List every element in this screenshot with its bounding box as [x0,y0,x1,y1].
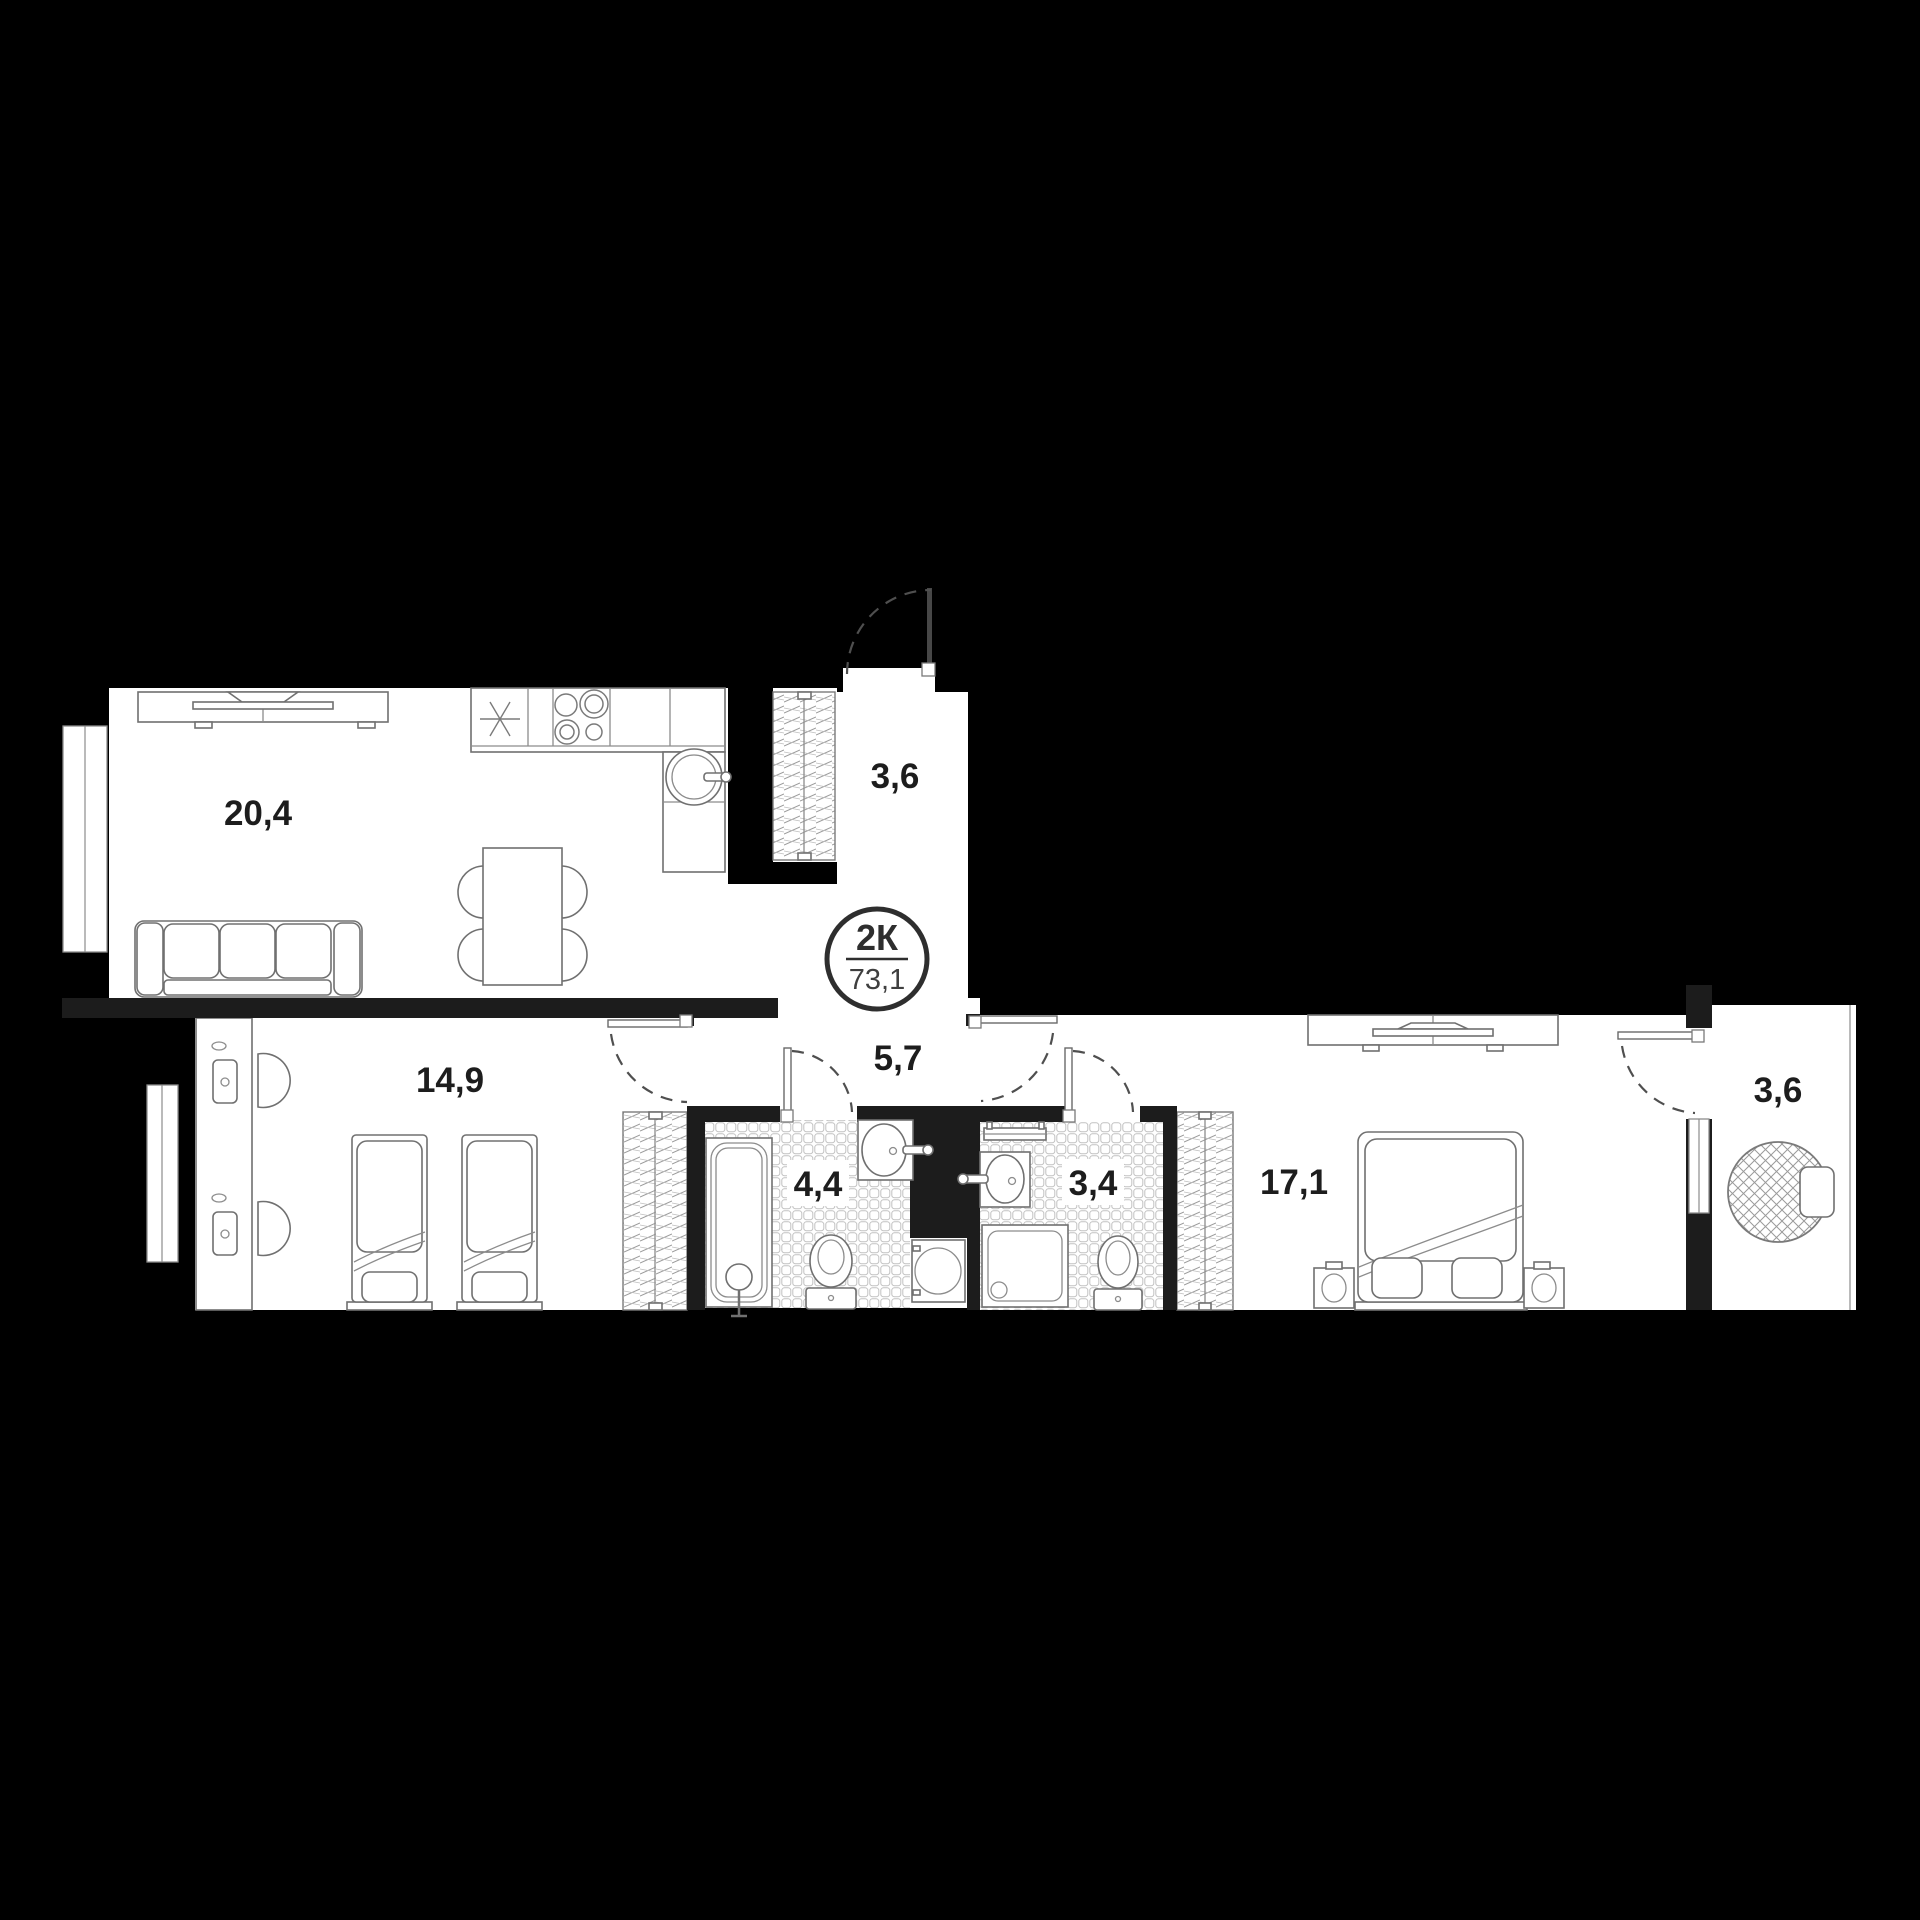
entry-wardrobe-icon [773,692,835,860]
living-room-window [63,726,107,952]
loggia-area-label: 3,6 [1754,1071,1803,1110]
washing-machine-icon [912,1240,965,1302]
loggia-door-block [1686,1028,1712,1213]
badge-total-area: 73,1 [849,964,905,996]
living-room-area-label: 20,4 [224,794,293,833]
master-bedroom-area-label: 17,1 [1260,1163,1328,1202]
badge-rooms-label: 2К [856,917,899,958]
wall-shower-top [1140,1106,1163,1122]
apartment-badge: 2К 73,1 [827,909,927,1009]
wall-bath-divider [967,1106,980,1310]
duct-shaft [910,1106,967,1238]
tv-console-icon [138,692,388,728]
wall-shower-top [980,1106,1068,1122]
wall-shower-right [1163,1106,1177,1310]
shower-room-area-label: 3,4 [1069,1164,1118,1203]
tv-console-icon [1308,1015,1558,1051]
children-wardrobe-icon [623,1112,687,1310]
wall-bath-left [687,1106,705,1310]
sofa-icon [135,921,362,997]
floor-plan: 20,4 3,6 5,7 14,9 4,4 3,4 17,1 3,6 2К 73… [0,0,1920,1920]
wall-living-bottom [62,998,778,1018]
bathroom-area-label: 4,4 [794,1165,843,1204]
entrance-door-gap [843,668,935,692]
entry-hall-area-label: 3,6 [871,757,920,796]
nightstand-icon [1314,1262,1354,1308]
children-bedroom-window [147,1085,178,1262]
dining-table-icon [458,848,587,985]
loggia-glazing [1844,1005,1856,1310]
double-bed-icon [1355,1132,1527,1310]
wall-bath-top [705,1106,780,1122]
master-wardrobe-icon [1177,1112,1233,1310]
toilet-icon [806,1235,856,1309]
single-bed-icon [457,1135,542,1310]
nightstand-icon [1524,1262,1564,1308]
bathtub-icon [706,1138,772,1316]
single-bed-icon [347,1135,432,1310]
corridor-area-label: 5,7 [874,1039,923,1078]
shower-tray-icon [982,1225,1068,1307]
children-bedroom-area-label: 14,9 [416,1061,484,1100]
toilet-icon [1094,1236,1142,1310]
